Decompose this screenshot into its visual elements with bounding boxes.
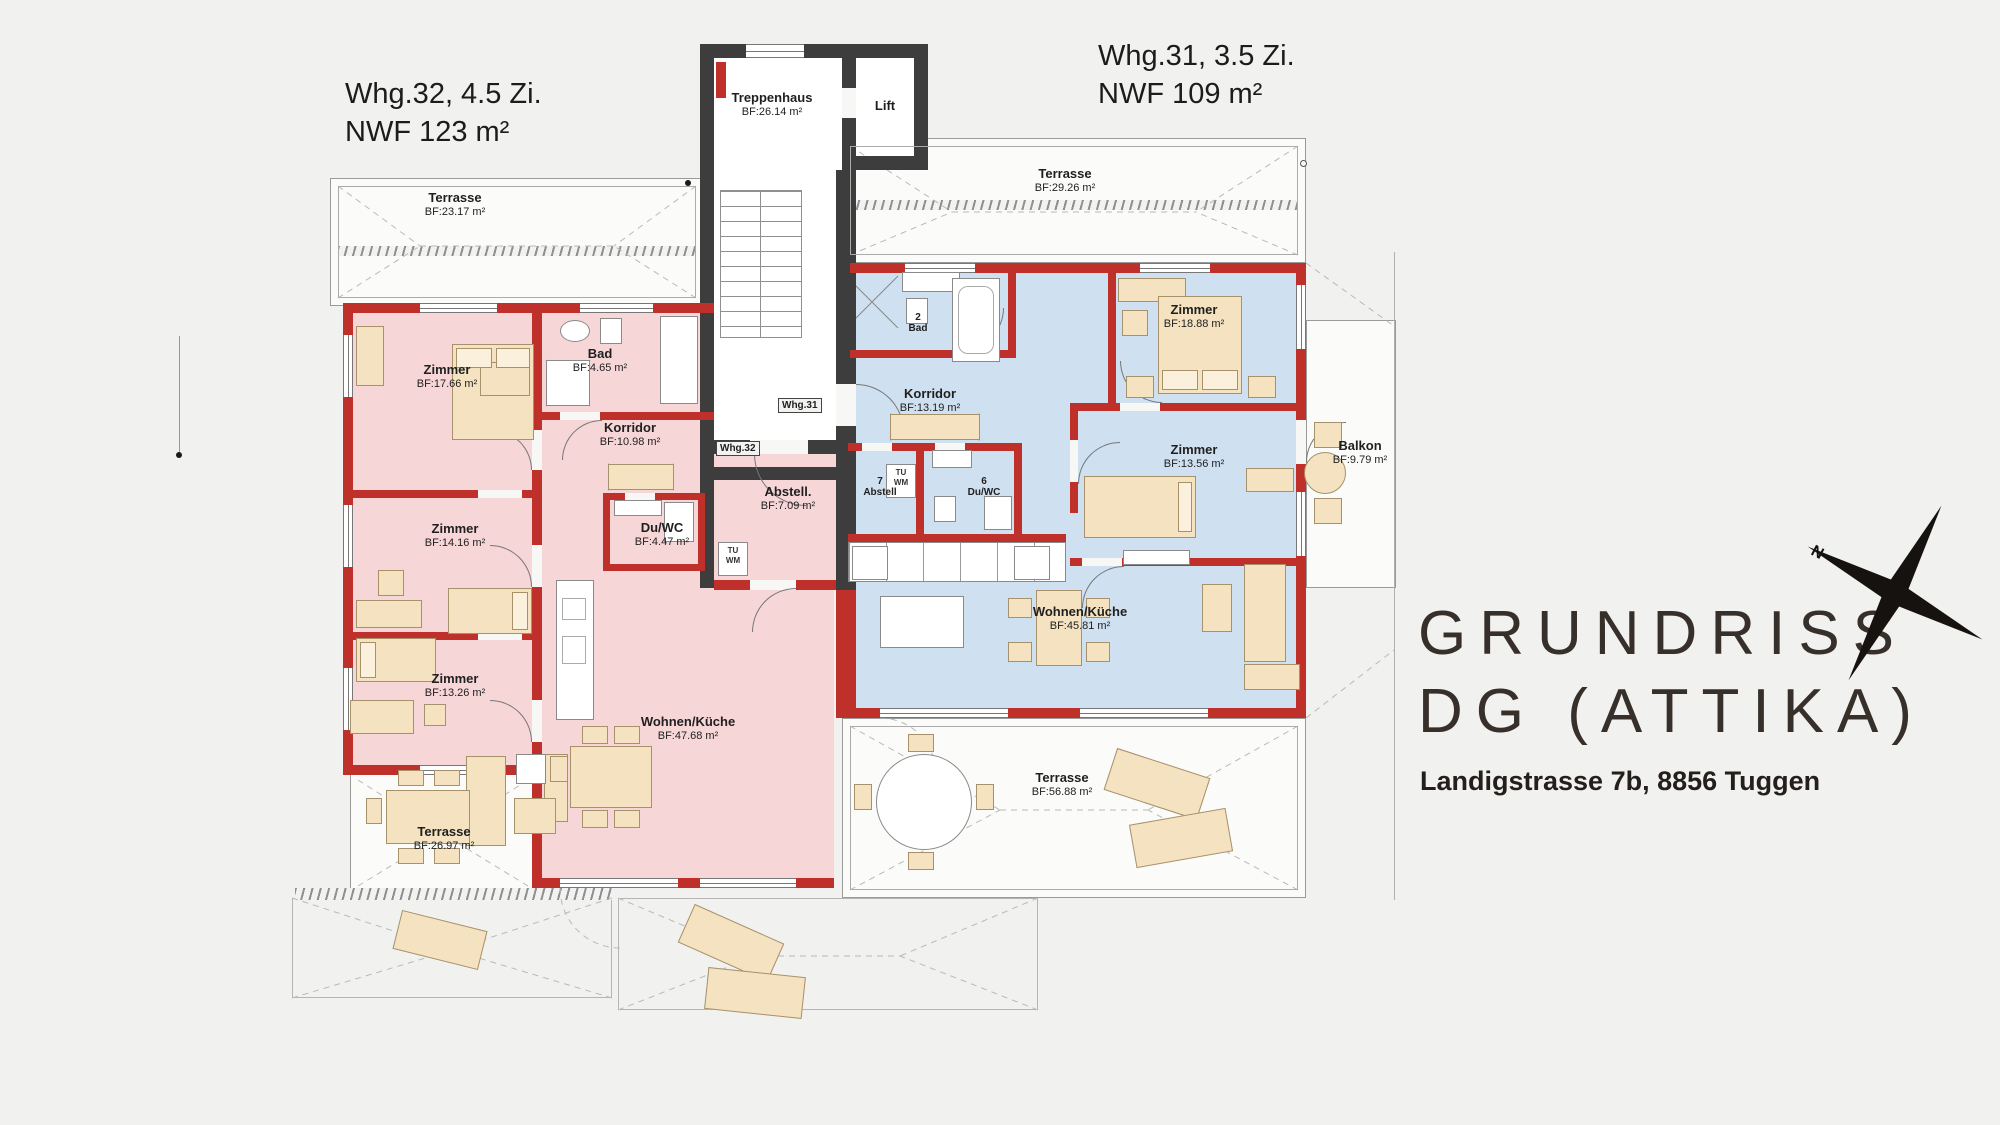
room-name: Bad: [573, 346, 627, 362]
room-label: Bad BF:4.65 m²: [573, 346, 627, 375]
window: [880, 708, 1008, 718]
pillow: [1162, 370, 1198, 390]
room-area: BF:17.66 m²: [417, 378, 478, 391]
room-name: Terrasse: [425, 190, 486, 206]
desk: [350, 700, 414, 734]
chair: [1314, 498, 1342, 524]
appliance-label: WM: [719, 556, 747, 566]
window: [343, 335, 353, 397]
balcony-label: Balkon BF:9.79 m²: [1333, 438, 1387, 467]
room-name: Terrasse: [1035, 166, 1096, 182]
terrace-label: Terrasse BF:29.26 m²: [1035, 166, 1096, 195]
door-label-whg31: Whg.31: [778, 398, 822, 413]
room-label: Wohnen/Küche BF:45.81 m²: [1033, 604, 1127, 633]
room-label: Zimmer BF:14.16 m²: [425, 521, 486, 550]
wall-red-party: [836, 590, 856, 718]
dishwasher: [852, 546, 888, 580]
wall-red: [1014, 443, 1022, 542]
chair: [1008, 642, 1032, 662]
pillow: [512, 592, 528, 630]
room-name: Zimmer: [1164, 442, 1225, 458]
room-area: BF:23.17 m²: [425, 206, 486, 219]
room-area: BF:4.65 m²: [573, 362, 627, 375]
chair: [614, 726, 640, 744]
chair: [378, 570, 404, 596]
window: [560, 878, 678, 888]
room-name: Zimmer: [1164, 302, 1225, 318]
window: [1080, 708, 1208, 718]
armchair: [1122, 310, 1148, 336]
wall-red: [1108, 273, 1116, 403]
room-area: BF:26.97 m²: [414, 840, 475, 853]
window: [746, 44, 804, 58]
chair: [398, 770, 424, 786]
shower: [984, 496, 1012, 530]
room-name: Zimmer: [425, 521, 486, 537]
room-label-treppenhaus: Treppenhaus BF:26.14 m²: [732, 90, 813, 119]
chair: [582, 810, 608, 828]
cooktop: [562, 636, 586, 664]
window: [700, 878, 796, 888]
door-opening: [560, 412, 600, 420]
room-number: 2: [909, 312, 928, 323]
tv-sideboard: [1123, 550, 1190, 565]
room-label: 6 Du/WC: [968, 476, 1001, 498]
room-area: BF:10.98 m²: [600, 436, 661, 449]
door-opening: [625, 493, 655, 500]
dresser: [1246, 468, 1294, 492]
room-label: Abstell. BF:7.09 m²: [761, 484, 815, 513]
terrace-label: Terrasse BF:23.17 m²: [425, 190, 486, 219]
room-label: Wohnen/Küche BF:47.68 m²: [641, 714, 735, 743]
room-label: Du/WC BF:4.47 m²: [635, 520, 689, 549]
wall-red: [916, 443, 924, 542]
room-area: BF:29.26 m²: [1035, 182, 1096, 195]
kitchen-sink: [562, 598, 586, 620]
room-name: Zimmer: [425, 671, 486, 687]
room-name: Zimmer: [417, 362, 478, 378]
sink: [560, 320, 590, 342]
room-area: BF:26.14 m²: [732, 106, 813, 119]
lift-door-opening: [842, 88, 856, 118]
terrace-label: Terrasse BF:56.88 m²: [1032, 770, 1093, 799]
room-name: Bad: [909, 323, 928, 334]
room-area: BF:14.16 m²: [425, 537, 486, 550]
door-opening: [1082, 558, 1122, 566]
chair: [1008, 598, 1032, 618]
door-opening: [1120, 403, 1160, 411]
toilet: [600, 318, 622, 344]
terrace-top-left-inner: [338, 186, 696, 298]
room-name: Treppenhaus: [732, 90, 813, 106]
room-area: BF:56.88 m²: [1032, 786, 1093, 799]
dining-table: [570, 746, 652, 808]
door-opening: [1070, 440, 1078, 482]
chair: [550, 756, 568, 782]
closet: [608, 464, 674, 490]
terrace-top-right-inner: [850, 146, 1298, 255]
compass-north-label: N: [1808, 543, 1826, 563]
room-name: Abstell: [863, 487, 896, 498]
apartment-31-header: Whg.31, 3.5 Zi. NWF 109 m²: [1098, 38, 1295, 113]
room-name: Du/WC: [968, 487, 1001, 498]
window: [580, 303, 653, 313]
pillow: [1202, 370, 1238, 390]
dresser: [356, 326, 384, 386]
room-number: 6: [968, 476, 1001, 487]
room-area: BF:4.47 m²: [635, 536, 689, 549]
door-opening: [478, 490, 522, 498]
room-name: Du/WC: [635, 520, 689, 536]
window: [1296, 492, 1306, 556]
room-label: Zimmer BF:18.88 m²: [1164, 302, 1225, 331]
chair: [424, 704, 446, 726]
room-label: Zimmer BF:13.56 m²: [1164, 442, 1225, 471]
washer-dryer: TU WM: [718, 542, 748, 576]
sofa: [1244, 664, 1300, 690]
compass-north-icon: N: [1790, 488, 2000, 698]
room-area: BF:7.09 m²: [761, 500, 815, 513]
room-area: BF:47.68 m²: [641, 730, 735, 743]
plan-address: Landigstrasse 7b, 8856 Tuggen: [1420, 766, 1820, 797]
terrace-bottom-right-inner: [850, 726, 1298, 890]
armchair: [514, 798, 556, 834]
vanity: [614, 500, 662, 516]
fridge: [1014, 546, 1050, 580]
room-label: 7 Abstell: [863, 476, 896, 498]
door-opening: [862, 443, 892, 451]
room-area: BF:13.56 m²: [1164, 458, 1225, 471]
room-label: Korridor BF:13.19 m²: [900, 386, 961, 415]
vanity-counter: [660, 316, 698, 404]
door-opening: [532, 700, 542, 742]
wall-red: [848, 534, 1066, 542]
wall-red: [1008, 273, 1016, 358]
sofa: [1244, 564, 1286, 662]
room-label: Zimmer BF:13.26 m²: [425, 671, 486, 700]
toilet: [934, 496, 956, 522]
apartment-32-title: Whg.32, 4.5 Zi.: [345, 76, 542, 114]
floor-plan-canvas: Whg.32, 4.5 Zi. NWF 123 m² Whg.31, 3.5 Z…: [0, 0, 2000, 1125]
nightstand: [1248, 376, 1276, 398]
window: [420, 303, 497, 313]
room-name: Wohnen/Küche: [1033, 604, 1127, 620]
door-opening-whg31: [836, 384, 856, 426]
window: [343, 505, 353, 567]
pillow: [496, 348, 530, 368]
room-name: Lift: [875, 98, 895, 114]
balcony-door-opening: [1296, 420, 1306, 464]
appliance-label: TU: [719, 546, 747, 556]
coffee-table: [516, 754, 546, 784]
room-label: Korridor BF:10.98 m²: [600, 420, 661, 449]
pillow: [360, 642, 376, 678]
room-name: Terrasse: [414, 824, 475, 840]
nightstand: [1126, 376, 1154, 398]
bathtub-inner: [958, 286, 994, 354]
room-label: Zimmer BF:17.66 m²: [417, 362, 478, 391]
chair: [582, 726, 608, 744]
room-label-lift: Lift: [875, 98, 895, 114]
apartment-32-header: Whg.32, 4.5 Zi. NWF 123 m²: [345, 76, 542, 151]
room-name: Korridor: [600, 420, 661, 436]
room-number: 7: [863, 476, 896, 487]
terrace-label: Terrasse BF:26.97 m²: [414, 824, 475, 853]
dimension-dot: [176, 452, 182, 458]
room-name: Abstell.: [761, 484, 815, 500]
room-area: BF:45.81 m²: [1033, 620, 1127, 633]
armchair: [1202, 584, 1232, 632]
chair: [1086, 642, 1110, 662]
room-name: Korridor: [900, 386, 961, 402]
apartment-31-area: NWF 109 m²: [1098, 76, 1295, 114]
room-area: BF:13.26 m²: [425, 687, 486, 700]
apartment-32-area: NWF 123 m²: [345, 114, 542, 152]
sofa: [880, 596, 964, 648]
chair: [366, 798, 382, 824]
apartment-31-title: Whg.31, 3.5 Zi.: [1098, 38, 1295, 76]
dimension-dot: [685, 180, 691, 186]
wall-dark: [700, 44, 928, 58]
chair: [614, 810, 640, 828]
stair-center-line: [760, 190, 761, 338]
door-label-whg32: Whg.32: [716, 441, 760, 456]
pillow: [1178, 482, 1192, 532]
wall-red: [1070, 403, 1306, 411]
window: [1140, 263, 1210, 273]
vanity: [932, 450, 972, 468]
window: [1296, 285, 1306, 349]
room-label: 2 Bad: [909, 312, 928, 334]
stair-flight: [720, 190, 802, 338]
room-area: BF:18.88 m²: [1164, 318, 1225, 331]
wall-red: [716, 62, 726, 98]
room-area: BF:13.19 m²: [900, 402, 961, 415]
dimension-mark: [1300, 160, 1307, 167]
closet: [890, 414, 980, 440]
chair: [434, 770, 460, 786]
room-area: BF:9.79 m²: [1333, 454, 1387, 467]
door-opening: [532, 545, 542, 587]
desk: [356, 600, 422, 628]
room-name: Wohnen/Küche: [641, 714, 735, 730]
room-name: Balkon: [1333, 438, 1387, 454]
room-name: Terrasse: [1032, 770, 1093, 786]
wall-red: [343, 303, 714, 313]
